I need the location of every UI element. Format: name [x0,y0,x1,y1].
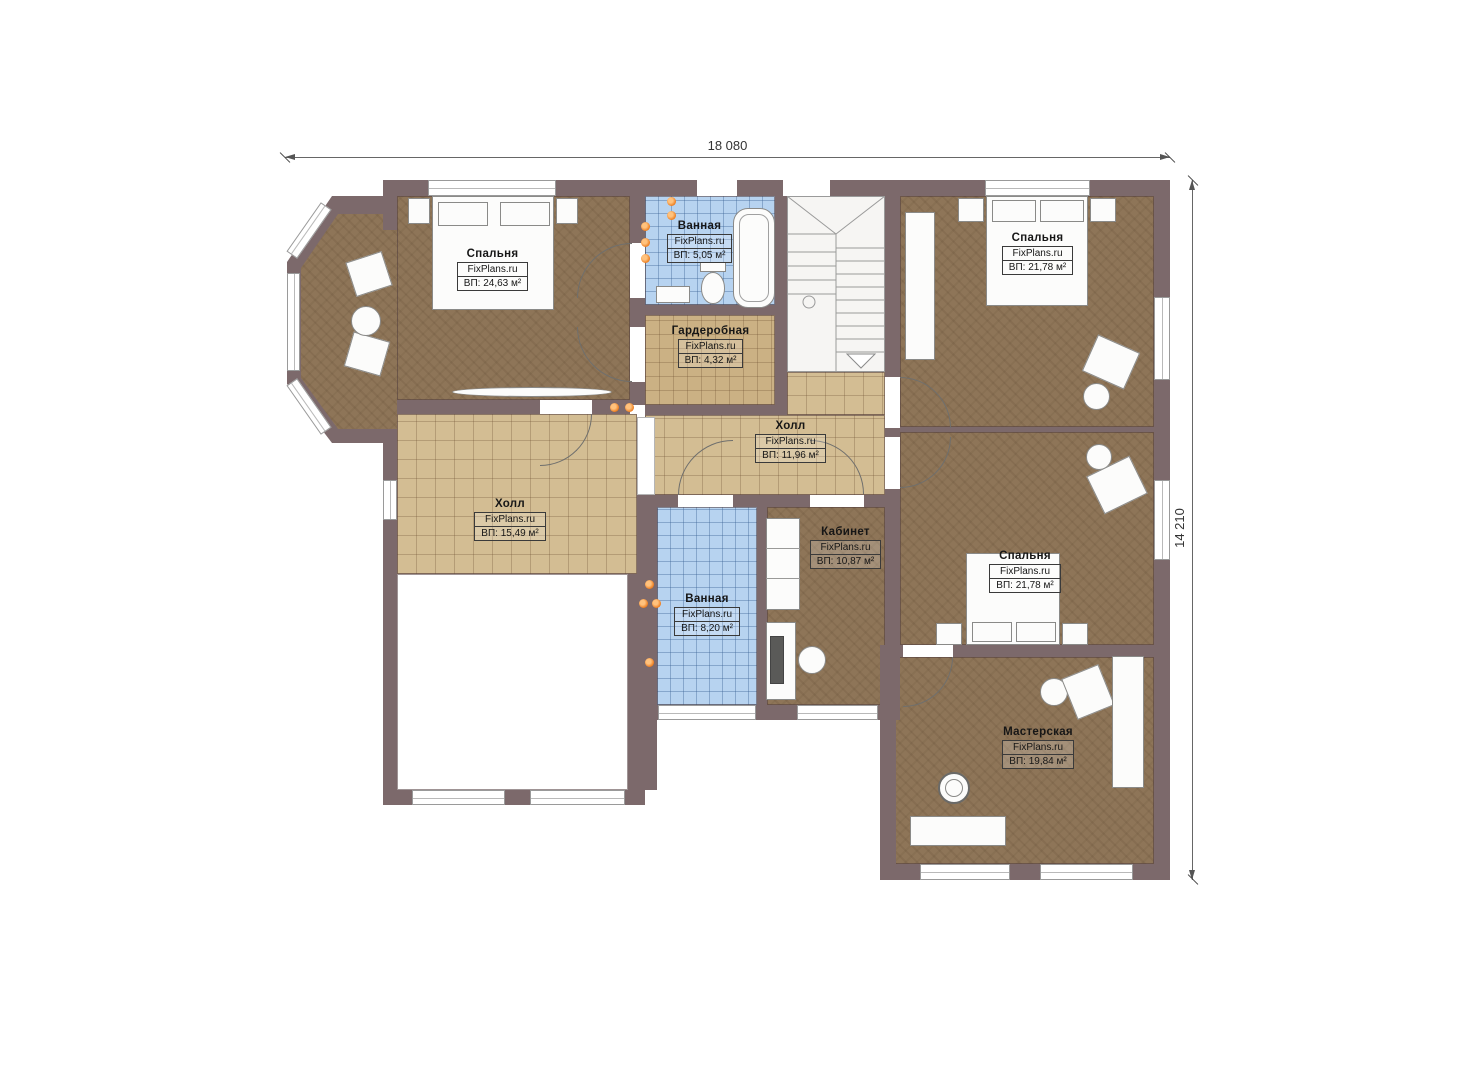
nightstand [1090,198,1116,222]
wall-light-icon [645,658,654,667]
room-label-hall-center: Холл FixPlans.ru ВП: 11,96 м² [733,420,848,463]
floor-plan-canvas: Спальня FixPlans.ru ВП: 24,63 м² Ванная … [0,0,1474,1080]
cased-opening [637,417,655,495]
room-area: ВП: 15,49 м² [475,526,544,540]
room-name: Спальня [425,248,560,260]
wall-light-icon [641,254,650,263]
room-info-box: FixPlans.ru ВП: 8,20 м² [674,607,740,636]
window [985,180,1090,196]
room-info-box: FixPlans.ru ВП: 21,78 м² [989,564,1060,593]
wall [637,495,657,574]
workbench [910,816,1006,846]
sink [656,286,690,303]
room-name: Спальня [970,550,1080,562]
wall [885,428,900,437]
room-label-workshop: Мастерская FixPlans.ru ВП: 19,84 м² [978,726,1098,769]
window [1154,480,1170,560]
room-area: ВП: 8,20 м² [675,621,739,635]
room-label-bathroom-center: Ванная FixPlans.ru ВП: 8,20 м² [652,593,762,636]
watermark: FixPlans.ru [1003,247,1072,260]
nightstand [408,198,430,224]
pillow [972,622,1012,642]
wall [383,520,397,790]
staircase [787,196,885,372]
watermark: FixPlans.ru [475,513,544,526]
room-name: Ванная [652,593,762,605]
room-area: ВП: 21,78 м² [1003,260,1072,274]
wall [630,382,645,405]
watermark: FixPlans.ru [1003,741,1072,754]
room-label-hall-left: Холл FixPlans.ru ВП: 15,49 м² [450,498,570,541]
room-label-bedroom-top-right: Спальня FixPlans.ru ВП: 21,78 м² [980,232,1095,275]
room-label-wardrobe: Гардеробная FixPlans.ru ВП: 4,32 м² [648,325,773,368]
dimension-line-vertical [1192,180,1193,880]
wall-light-icon [641,238,650,247]
pillow [500,202,550,226]
nightstand [556,198,578,224]
wall-gap [697,180,737,196]
room-name: Кабинет [798,526,893,538]
toilet-tank [700,262,726,272]
sofa [766,518,800,610]
window [428,180,556,196]
pillow [1016,622,1056,642]
wall-light-icon [625,403,634,412]
room-info-box: FixPlans.ru ВП: 5,05 м² [667,234,733,263]
dimension-width-label: 18 080 [285,138,1170,153]
nightstand [1062,623,1088,645]
room-info-box: FixPlans.ru ВП: 10,87 м² [810,540,881,569]
wall-gap [783,180,830,196]
room-label-bedroom-top-left: Спальня FixPlans.ru ВП: 24,63 м² [425,248,560,291]
wall [895,645,903,657]
room-name: Ванная [652,220,747,232]
room-name: Спальня [980,232,1095,244]
wall-light-icon [639,599,648,608]
room-area: ВП: 4,32 м² [679,353,743,367]
wall [885,489,900,720]
dimension-height-label: 14 210 [1172,488,1187,568]
wall [733,495,810,507]
wall [383,430,397,480]
nightstand [958,198,984,222]
wall-light-icon [641,222,650,231]
room-info-box: FixPlans.ru ВП: 21,78 м² [1002,246,1073,275]
pillow [992,200,1036,222]
room-area: ВП: 10,87 м² [811,554,880,568]
room-area: ВП: 5,05 м² [668,248,732,262]
window [1040,864,1133,880]
room-area: ВП: 24,63 м² [458,276,527,290]
monitor [770,636,784,684]
pillow [1040,200,1084,222]
watermark: FixPlans.ru [675,608,739,621]
window [1154,297,1170,380]
closet [905,212,935,360]
bay-window [287,273,300,371]
watermark: FixPlans.ru [458,263,527,276]
pot [938,772,970,804]
window [530,790,625,805]
wall [864,495,895,507]
watermark: FixPlans.ru [811,541,880,554]
coffee-table [351,306,381,336]
room-area: ВП: 19,84 м² [1003,754,1072,768]
nightstand [936,623,962,645]
floor-void-room [397,574,628,790]
room-label-bathroom-top: Ванная FixPlans.ru ВП: 5,05 м² [652,220,747,263]
watermark: FixPlans.ru [990,565,1059,578]
room-info-box: FixPlans.ru ВП: 19,84 м² [1002,740,1073,769]
room-name: Холл [450,498,570,510]
sofa-cushion-line [766,578,800,579]
window [658,705,756,720]
window [383,480,397,520]
chair [1083,383,1110,410]
wall-light-icon [667,211,676,220]
room-info-box: FixPlans.ru ВП: 11,96 м² [755,434,826,463]
room-name: Гардеробная [648,325,773,337]
pillow [438,202,488,226]
wall [397,400,540,414]
wall [645,405,787,415]
wall [630,196,645,243]
room-info-box: FixPlans.ru ВП: 24,63 м² [457,262,528,291]
office-chair [798,646,826,674]
wall-light-icon [610,403,619,412]
workbench [1112,656,1144,788]
room-info-box: FixPlans.ru ВП: 15,49 м² [474,512,545,541]
wall [383,196,397,230]
sofa-cushion-line [766,548,800,549]
shelf [452,387,612,397]
room-label-bedroom-middle: Спальня FixPlans.ru ВП: 21,78 м² [970,550,1080,593]
floor-hall-center-upper [787,372,885,415]
wall [630,298,645,327]
watermark: FixPlans.ru [679,340,743,353]
room-info-box: FixPlans.ru ВП: 4,32 м² [678,339,744,368]
room-name: Мастерская [978,726,1098,738]
room-label-office: Кабинет FixPlans.ru ВП: 10,87 м² [798,526,893,569]
dimension-line-horizontal [285,157,1170,158]
watermark: FixPlans.ru [756,435,825,448]
room-area: ВП: 21,78 м² [990,578,1059,592]
watermark: FixPlans.ru [668,235,732,248]
window [797,705,878,720]
wall [885,196,900,377]
floor-hall-left [397,414,637,574]
wall [775,196,787,415]
toilet [701,272,725,304]
room-name: Холл [733,420,848,432]
wall-light-icon [667,197,676,206]
window [412,790,505,805]
window [920,864,1010,880]
room-area: ВП: 11,96 м² [756,448,825,462]
wall-light-icon [645,580,654,589]
